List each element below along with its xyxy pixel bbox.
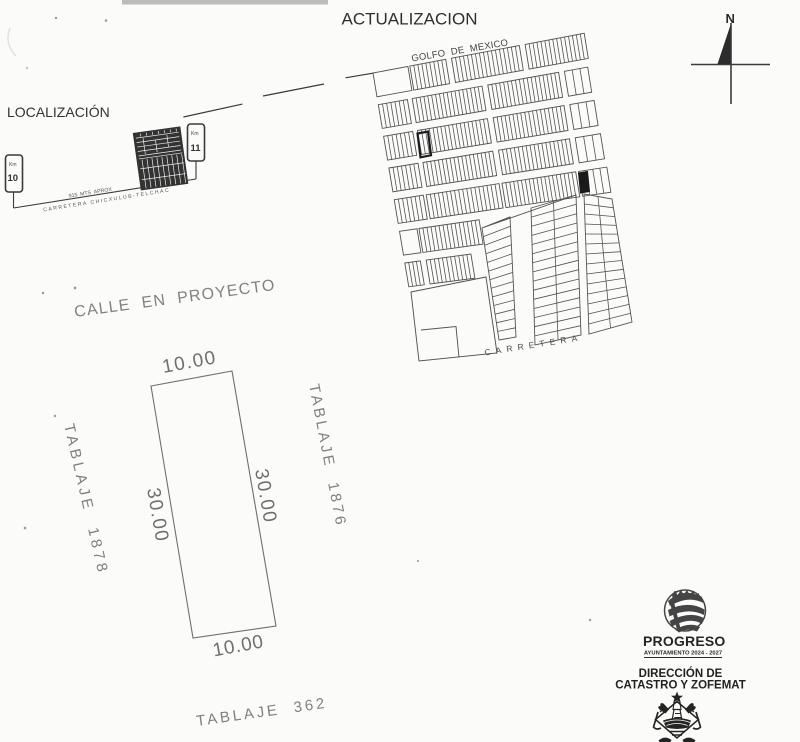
svg-text:DIRECCIÓN DE: DIRECCIÓN DE xyxy=(639,667,723,680)
svg-text:PROGRESO: PROGRESO xyxy=(643,633,726,649)
svg-text:30.00: 30.00 xyxy=(142,486,172,544)
svg-text:CATASTRO Y ZOFEMAT: CATASTRO Y ZOFEMAT xyxy=(615,680,746,692)
svg-text:Km: Km xyxy=(9,162,17,168)
svg-text:TABLAJE 1878: TABLAJE 1878 xyxy=(60,422,111,577)
svg-text:AYUNTAMIENTO 2024 - 2027: AYUNTAMIENTO 2024 - 2027 xyxy=(644,651,722,657)
svg-text:LOCALIZACIÓN: LOCALIZACIÓN xyxy=(7,104,110,120)
svg-text:10: 10 xyxy=(8,173,19,184)
svg-text:10.00: 10.00 xyxy=(211,631,266,661)
svg-text:ACTUALIZACION: ACTUALIZACION xyxy=(342,10,478,29)
svg-text:CALLE EN PROYECTO: CALLE EN PROYECTO xyxy=(73,277,276,321)
svg-text:30.00: 30.00 xyxy=(250,467,280,525)
svg-text:TABLAJE 362: TABLAJE 362 xyxy=(195,695,328,730)
svg-text:11: 11 xyxy=(191,143,202,154)
svg-text:N: N xyxy=(726,11,735,26)
svg-text:10.00: 10.00 xyxy=(161,347,219,378)
svg-text:TABLAJE 1876: TABLAJE 1876 xyxy=(305,383,350,529)
svg-text:Km: Km xyxy=(191,131,199,137)
